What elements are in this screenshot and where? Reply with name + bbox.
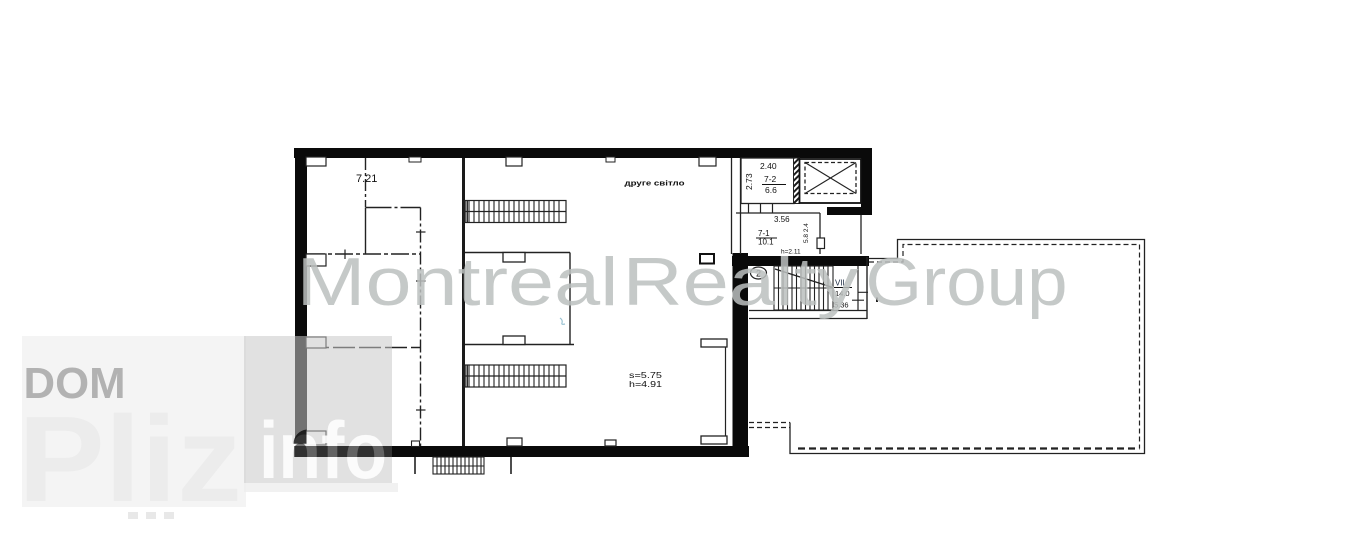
svg-text:s=5.75: s=5.75: [629, 371, 663, 380]
svg-text:друге світло: друге світло: [625, 178, 686, 187]
svg-text:6.6: 6.6: [765, 185, 777, 195]
svg-text:h=4.91: h=4.91: [629, 380, 663, 389]
svg-text:7.21: 7.21: [356, 173, 377, 185]
svg-text:3.56: 3.56: [774, 215, 790, 224]
svg-text:Realty: Realty: [623, 244, 859, 320]
svg-text:Pliz: Pliz: [18, 391, 242, 527]
svg-text:7-2: 7-2: [764, 174, 777, 184]
svg-text:2.73: 2.73: [744, 173, 754, 190]
svg-text:5.8 2.4: 5.8 2.4: [803, 223, 810, 243]
svg-text:2.40: 2.40: [760, 161, 777, 171]
svg-text:Group: Group: [866, 244, 1068, 320]
svg-text:Montreal: Montreal: [297, 244, 619, 320]
